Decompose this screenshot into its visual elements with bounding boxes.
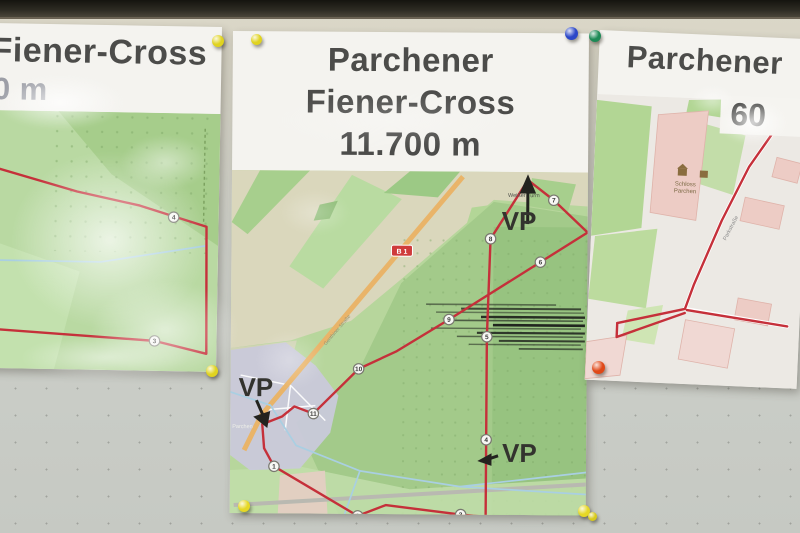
checkpoint-3: 3 — [455, 509, 465, 515]
poster-left-distance: 0 m — [0, 71, 48, 108]
left-forest-texture — [50, 111, 220, 254]
pushpin-yellow — [251, 34, 262, 45]
svg-text:1: 1 — [272, 464, 276, 471]
svg-text:6: 6 — [539, 259, 543, 266]
pushpin-orange-red — [592, 361, 605, 374]
svg-text:10: 10 — [355, 366, 363, 373]
pushpin-yellow — [206, 365, 218, 377]
right-map-graphic: Schloss Parchen Parkstraße — [585, 94, 800, 389]
svg-text:4: 4 — [172, 214, 176, 221]
checkpoint-3: 3 — [149, 336, 160, 347]
poster-right-title: Parchener — [597, 30, 800, 103]
svg-text:7: 7 — [552, 198, 556, 205]
pushpin-green — [589, 30, 601, 42]
poster-center-title-line1: Parchener — [233, 38, 589, 82]
poster-left-title-block: Fiener-Cross 0 m — [0, 22, 222, 113]
poster-left-map: Fiener-Cross 0 m 43 — [0, 22, 222, 371]
vp-label-left: VP — [238, 372, 273, 402]
vp-label-right: VP — [502, 438, 537, 468]
landmark-label: Weißer Turm — [508, 193, 540, 199]
park-area — [588, 226, 657, 309]
svg-text:5: 5 — [485, 334, 489, 341]
checkpoint-7: 7 — [549, 195, 559, 205]
poster-center-title-line2: Fiener-Cross — [232, 80, 588, 124]
center-map-graphic: Genthiner Straße B 1 — [230, 170, 588, 515]
svg-text:9: 9 — [447, 317, 451, 324]
vp-label-top: VP — [502, 206, 537, 236]
pushpin-yellow — [588, 512, 597, 521]
svg-text:3: 3 — [153, 338, 157, 345]
museum-icon — [700, 170, 708, 177]
schloss-label-2: Parchen — [674, 188, 697, 195]
forest-texture — [400, 231, 588, 515]
pushpin-blue — [565, 27, 578, 40]
svg-text:8: 8 — [489, 236, 493, 243]
checkpoint-6: 6 — [535, 257, 545, 267]
checkpoint-1: 1 — [269, 461, 279, 471]
checkpoint-8: 8 — [485, 234, 495, 244]
village-name: Parchen — [232, 424, 253, 430]
checkpoint-9: 9 — [444, 314, 454, 324]
schloss-label-1: Schloss — [675, 181, 696, 188]
poster-center-map: Parchener Fiener-Cross 11.700 m — [230, 31, 589, 515]
checkpoint-5: 5 — [482, 332, 492, 342]
checkpoint-11: 11 — [308, 408, 318, 418]
svg-text:B 1: B 1 — [396, 249, 407, 256]
svg-text:4: 4 — [484, 437, 488, 444]
poster-right-distance: 60 — [720, 95, 800, 137]
svg-text:11: 11 — [310, 411, 317, 418]
poster-center-title-line3: 11.700 m — [232, 122, 588, 166]
checkpoint-4: 4 — [168, 212, 179, 223]
road-b1-badge: B 1 — [391, 245, 412, 256]
poster-right-map: Parchener 60 — [585, 30, 800, 389]
poster-left-title: Fiener-Cross — [0, 31, 208, 74]
poster-center-title-block: Parchener Fiener-Cross 11.700 m — [232, 31, 589, 172]
left-map-graphic: 43 — [0, 109, 220, 371]
checkpoint-4: 4 — [481, 435, 491, 445]
pushpin-yellow — [212, 35, 224, 47]
pushpin-yellow — [238, 500, 250, 512]
checkpoint-10: 10 — [353, 364, 363, 374]
photo-of-course-maps: Fiener-Cross 0 m 43 Parchener Fiener-Cro… — [0, 0, 800, 533]
ceiling-rail — [0, 0, 800, 19]
